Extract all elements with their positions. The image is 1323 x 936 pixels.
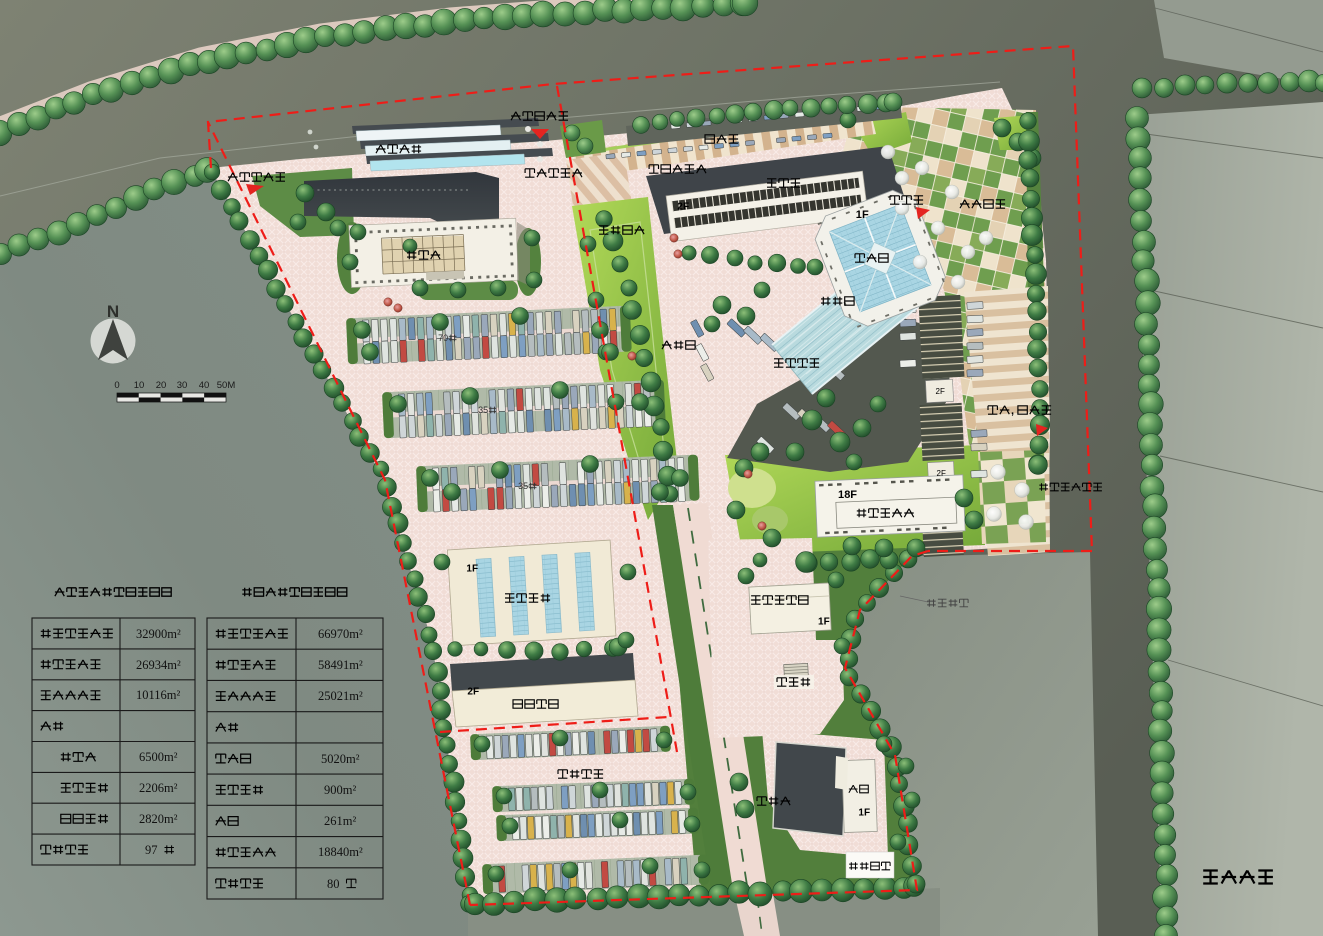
svg-text:1: 1 (856, 209, 862, 221)
svg-text:50M: 50M (217, 380, 236, 391)
svg-text:32900m²: 32900m² (136, 627, 181, 641)
svg-text:F: F (824, 617, 830, 628)
svg-text:25021m²: 25021m² (318, 689, 363, 703)
svg-text:20: 20 (156, 380, 167, 391)
svg-text:5020m²: 5020m² (321, 752, 360, 766)
svg-text:30: 30 (177, 380, 188, 391)
svg-text:10116m²: 10116m² (136, 688, 181, 702)
svg-text:97: 97 (145, 843, 158, 857)
svg-text:900m²: 900m² (324, 783, 356, 797)
svg-text:F: F (941, 469, 946, 478)
svg-text:0: 0 (114, 380, 119, 391)
svg-text:F: F (473, 687, 479, 698)
svg-text:40: 40 (199, 380, 210, 391)
svg-text:18840m²: 18840m² (318, 845, 363, 859)
svg-text:F: F (940, 387, 945, 396)
svg-text:66970m²: 66970m² (318, 627, 363, 641)
svg-text:F: F (862, 209, 869, 221)
svg-text:N: N (107, 302, 119, 321)
svg-text:2820m²: 2820m² (139, 812, 178, 826)
svg-text:261m²: 261m² (324, 814, 356, 828)
svg-text:58491m²: 58491m² (318, 658, 363, 672)
svg-text:0: 0 (443, 333, 448, 343)
svg-text:5: 5 (483, 405, 488, 415)
svg-text:F: F (864, 808, 870, 819)
svg-text:F: F (850, 489, 857, 501)
svg-text:5: 5 (523, 481, 528, 491)
svg-text:F: F (472, 564, 478, 575)
svg-text:6500m²: 6500m² (139, 750, 178, 764)
svg-text:10: 10 (134, 380, 145, 391)
svg-text:,: , (1011, 405, 1014, 417)
svg-text:26934m²: 26934m² (136, 658, 181, 672)
svg-text:80: 80 (327, 877, 340, 891)
svg-text:F: F (683, 202, 689, 213)
svg-text:2206m²: 2206m² (139, 781, 178, 795)
